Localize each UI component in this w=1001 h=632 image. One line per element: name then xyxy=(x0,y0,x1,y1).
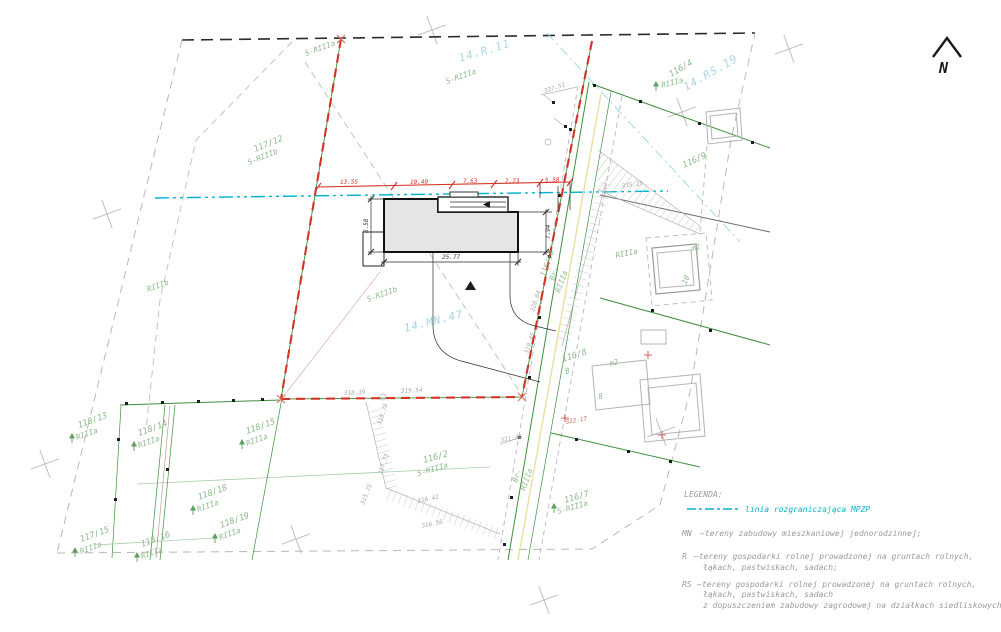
soil-label: RIIIb xyxy=(146,278,171,294)
soil-label: S-RIIIa xyxy=(445,67,478,86)
building-label: 8 xyxy=(598,391,605,401)
zone-label-14RS19: 14.RS.19 xyxy=(681,52,740,94)
elevation-value: 327.51 xyxy=(543,82,567,96)
soil-label: S-RIIIb xyxy=(366,284,399,303)
legend-rs-text-1: —tereny gospodarki rolnej prowadzonej na… xyxy=(696,580,976,589)
soil-label: RIIIa xyxy=(660,75,684,90)
tie-line-red xyxy=(283,272,380,397)
dim-label-left: 8.58 xyxy=(363,218,370,233)
legend-r-text-1: —tereny gospodarki rolnej prowadzonej na… xyxy=(693,552,973,561)
soil-label: B xyxy=(564,366,572,376)
grid-cross-icon xyxy=(88,195,126,233)
inner-green-dashed-boundary xyxy=(146,42,292,430)
zone-label-14R11: 14.R.11 xyxy=(457,37,512,65)
study-area-north-boundary xyxy=(182,33,755,40)
soil-label: RIIIa xyxy=(615,246,639,259)
legend-mn-text: —tereny zabudowy mieszkaniowej jednorodz… xyxy=(699,529,922,538)
embankment-edge-road xyxy=(562,182,606,346)
grid-cross-icon xyxy=(525,581,563,619)
elevation-value: 319.54 xyxy=(400,387,423,395)
elevation-leader-lines xyxy=(500,87,577,444)
elevation-value: 315.75 xyxy=(359,483,374,507)
survey-grid-crosses xyxy=(26,11,808,619)
boundary-118-north xyxy=(120,400,281,405)
zone-label-14MN47: 14.MN.47 xyxy=(403,308,465,335)
neighbour-building-outline xyxy=(592,360,650,410)
tree-icon xyxy=(653,81,659,91)
mpzp-dividing-line xyxy=(155,191,668,198)
grid-cross-icon xyxy=(642,413,680,451)
boundary-stone-marker xyxy=(380,394,386,400)
legend-rs-text-3: z dopuszczeniem zabudowy zagrodowej na d… xyxy=(703,601,1001,610)
elevation-value: 321.46 xyxy=(499,433,523,444)
small-structure-outline xyxy=(641,330,666,344)
legend-mpzp-label: linia rozgraniczająca MPZP xyxy=(745,505,870,514)
elevation-values: 327.51 335.25 322.17 321.46 318.39 319.5… xyxy=(343,82,644,531)
building-label: 10 xyxy=(680,273,692,285)
road-utility-line xyxy=(518,94,601,560)
legend-r-code: R xyxy=(682,552,687,561)
driveway-direction-arrow-icon xyxy=(465,281,476,290)
neighbour-parcel-dashed xyxy=(646,233,712,306)
building-label: m2 xyxy=(608,357,620,368)
garage-wing-outline xyxy=(438,197,508,212)
soil-label: S-RIIIa xyxy=(304,39,337,58)
boundary-118-13-west xyxy=(112,406,121,558)
parcel-label: 116/9 xyxy=(681,151,708,171)
boundary-riiia-south xyxy=(600,298,770,345)
setback-dim-value: 7.63 xyxy=(463,178,478,185)
road-corridor xyxy=(498,82,770,560)
grid-cross-icon xyxy=(277,520,315,558)
boundary-116-8-south xyxy=(551,433,700,467)
north-arrow-icon xyxy=(933,38,961,57)
legend-r-text-2: łąkach, pastwiskach, sadach; xyxy=(703,563,838,572)
site-plan-drawing: 8.58 7.94 25.77 13.55 10.40 7.63 7.73 5.… xyxy=(0,0,1001,632)
setback-extension-lines xyxy=(540,182,570,212)
neighbour-buildings xyxy=(592,108,742,442)
north-arrow-label: N xyxy=(938,59,949,77)
parcel-frame-lines xyxy=(57,33,755,553)
elevation-value: 316.56 xyxy=(420,519,444,531)
setback-dim-value: 10.40 xyxy=(410,179,429,186)
setback-dim-value: 5.58 xyxy=(545,177,560,184)
north-arrow: N xyxy=(933,38,961,77)
dim-label-bottom: 25.77 xyxy=(442,254,460,261)
elevation-value: 318.39 xyxy=(343,389,366,397)
legend-mn-code: MN xyxy=(681,529,692,538)
grid-cross-icon xyxy=(26,445,64,483)
tree-icon xyxy=(72,547,78,557)
grid-cross-icon xyxy=(770,30,808,68)
elevation-value-red: 322.17 xyxy=(564,415,588,426)
dim-label-right: 7.94 xyxy=(545,224,552,239)
legend-rs-code: RS xyxy=(682,580,692,589)
embankment-hatch-116-2-south xyxy=(386,488,500,540)
grid-cross-icon xyxy=(413,11,451,49)
boundary-stone-marker xyxy=(545,139,551,145)
proposed-building: 8.58 7.94 25.77 13.55 10.40 7.63 7.73 5.… xyxy=(315,177,573,382)
site-plan-canvas: 8.58 7.94 25.77 13.55 10.40 7.63 7.73 5.… xyxy=(0,0,1001,632)
setback-dim-value: 7.73 xyxy=(505,178,520,185)
legend: LEGENDA: linia rozgraniczająca MPZP MN —… xyxy=(681,490,1001,610)
setback-dim-value: 13.55 xyxy=(340,179,359,186)
legend-rs-text-2: łąkach, pastwiskach, sadach xyxy=(703,590,833,599)
garage-step xyxy=(450,192,478,197)
legend-title: LEGENDA: xyxy=(684,490,723,499)
